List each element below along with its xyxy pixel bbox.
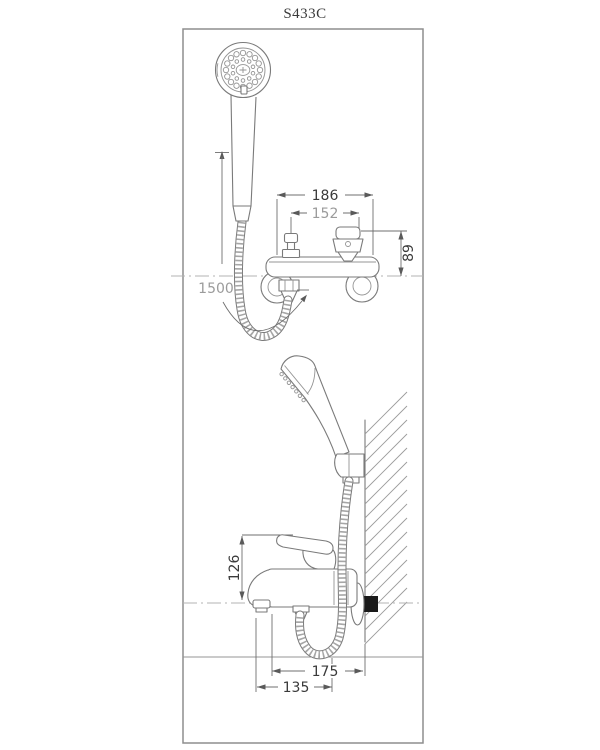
wall-anchor-block <box>363 596 378 612</box>
model-number-label: S433C <box>283 6 326 22</box>
front-view: 186 152 89 1500 <box>171 43 423 337</box>
hand-shower-handle <box>231 95 256 206</box>
dim-186: 186 <box>277 188 373 204</box>
hand-shower-side <box>280 356 364 483</box>
dim-152: 152 <box>291 206 359 222</box>
technical-drawing-page: S433C <box>0 0 600 750</box>
dim-126-label: 126 <box>227 555 243 582</box>
hose-connector <box>233 206 251 221</box>
dim-89-label: 89 <box>401 244 417 262</box>
dim-135-label: 135 <box>283 680 310 696</box>
dim-175: 175 <box>272 664 363 680</box>
aerator <box>253 600 270 608</box>
dim-126: 126 <box>227 536 243 600</box>
mode-button <box>241 86 247 94</box>
side-view: 126 175 135 <box>183 356 423 696</box>
dim-1500-label: 1500 <box>198 281 234 297</box>
dim-152-label: 152 <box>312 206 339 222</box>
dim-135: 135 <box>257 680 332 696</box>
mixer-handle-front <box>333 227 363 261</box>
drawing-canvas: S433C <box>0 0 600 750</box>
dim-186-label: 186 <box>312 188 339 204</box>
hand-shower-front <box>216 43 271 222</box>
dim-89: 89 <box>401 231 417 276</box>
mixer-body-front <box>266 257 379 277</box>
dim-175-label: 175 <box>312 664 339 680</box>
